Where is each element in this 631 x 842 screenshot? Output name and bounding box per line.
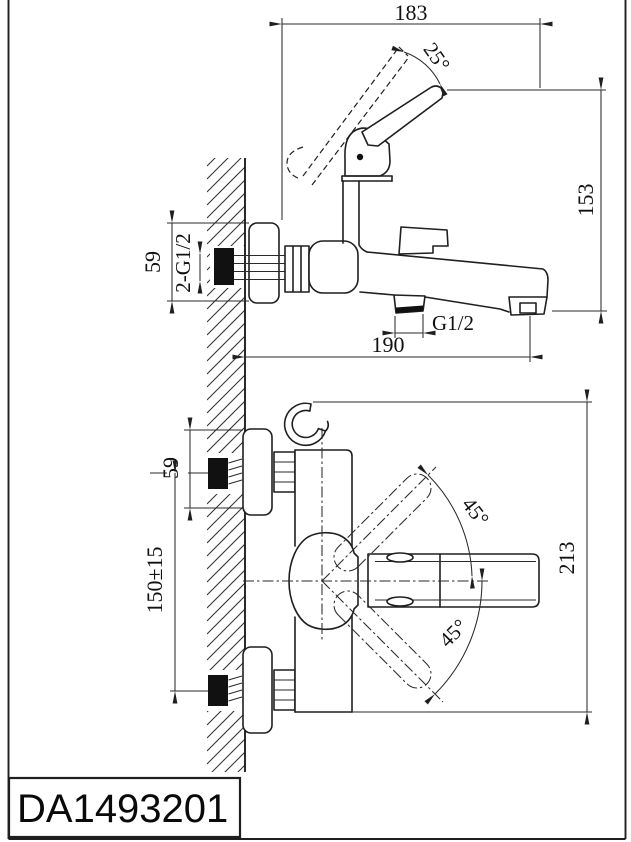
side-diverter-knob — [399, 227, 448, 254]
dim-swing-upper-label: 45° — [457, 493, 494, 531]
dim-handle-angle-label: 25° — [418, 38, 455, 76]
dim-swing-lower-label: 45° — [434, 614, 472, 652]
dim-height-side-label: 153 — [573, 184, 598, 217]
side-view — [214, 47, 548, 315]
side-union-nut — [285, 241, 358, 293]
side-handle — [342, 86, 443, 181]
technical-drawing: 183 25° 153 59 2-G1/2 G1/2 190 — [0, 0, 631, 842]
dim-escutcheon-side-label: 59 — [140, 251, 165, 273]
dim-depth-label: 190 — [372, 332, 405, 357]
model-code-label: DA1493201 — [17, 787, 228, 831]
front-inlet-nipple-lower — [208, 675, 228, 706]
dim-escutcheon-front-label: 59 — [158, 457, 183, 479]
dim-outlet-thread-label: G1/2 — [432, 311, 474, 335]
drawing-sheet: 183 25° 153 59 2-G1/2 G1/2 190 — [0, 0, 631, 842]
front-escutcheon-upper — [243, 429, 272, 515]
front-handle — [368, 553, 539, 607]
dim-width-top-label: 183 — [395, 0, 428, 25]
side-inlet-nipple — [214, 248, 234, 285]
side-spout — [360, 252, 548, 315]
title-block: DA1493201 — [9, 778, 240, 837]
page-frame — [9, 0, 626, 839]
front-escutcheon-lower — [243, 647, 272, 733]
dim-overall-height-label: 213 — [554, 542, 579, 575]
dim-inlet-spacing-label: 150±15 — [142, 546, 167, 613]
dim-inlet-thread-label: 2-G1/2 — [171, 233, 195, 293]
front-inlet-nipple-upper — [208, 458, 228, 489]
side-lever — [362, 86, 443, 146]
front-view — [208, 403, 539, 733]
